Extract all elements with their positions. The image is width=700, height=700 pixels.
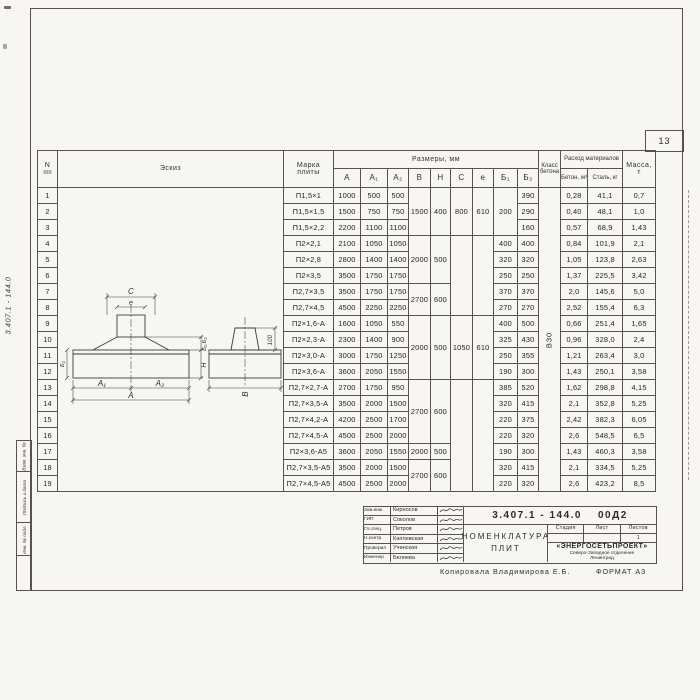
sketch-dim-c: С: [128, 287, 134, 296]
mass: 2,63: [623, 252, 656, 268]
plate-mark: П2×2,3-А: [284, 332, 334, 348]
concrete-volume: 2,42: [561, 412, 588, 428]
dim-a: 3600: [334, 444, 361, 460]
dim-a2: 1550: [388, 444, 409, 460]
dim-e: 610: [473, 188, 494, 236]
col-header-mass: Масса,т: [623, 151, 656, 188]
steel-weight: 145,6: [588, 284, 623, 300]
mass: 1,0: [623, 204, 656, 220]
col-header-size-3: В: [409, 169, 431, 188]
concrete-volume: 2,0: [561, 284, 588, 300]
scan-artifact-line: [688, 190, 689, 480]
dim-a: 4500: [334, 428, 361, 444]
col-header-size-0: А: [334, 169, 361, 188]
concrete-volume: 1,05: [561, 252, 588, 268]
row-number: 12: [38, 364, 58, 380]
row-number: 19: [38, 476, 58, 492]
dim-b2: 320: [518, 252, 539, 268]
staff-row: ПроверилУчинская: [363, 544, 463, 554]
staff-name: Соколов: [391, 516, 438, 525]
staff-role: Зав.инж.: [363, 506, 391, 515]
plate-mark: П2×2,1: [284, 236, 334, 252]
dim-a: 2200: [334, 220, 361, 236]
plate-mark: П2,7×4,2-А: [284, 412, 334, 428]
row-number: 16: [38, 428, 58, 444]
sketch-dim-a: А: [127, 391, 134, 400]
col-header-size-2: А₂: [388, 169, 409, 188]
page-number: 13: [658, 136, 670, 146]
signature: [439, 554, 463, 562]
staff-signature: [438, 544, 463, 553]
staff-signature: [438, 516, 463, 525]
staff-role: ГИП: [363, 516, 391, 525]
dim-a1: 1050: [361, 236, 388, 252]
scan-smudge: [3, 44, 7, 49]
plate-mark: П2,7×4,5: [284, 300, 334, 316]
dim-a1: 1750: [361, 348, 388, 364]
dim-b2: 300: [518, 364, 539, 380]
concrete-volume: 2,6: [561, 428, 588, 444]
margin-stamp-boxes: Взам. инв. №Подпись и датаИнв. № подл.: [16, 440, 32, 591]
steel-weight: 334,5: [588, 460, 623, 476]
row-number: 15: [38, 412, 58, 428]
dim-a2: 1400: [388, 252, 409, 268]
dim-a2: 2000: [388, 428, 409, 444]
steel-weight: 123,8: [588, 252, 623, 268]
dim-a2: 550: [388, 316, 409, 332]
mass: 5,25: [623, 460, 656, 476]
row-number: 9: [38, 316, 58, 332]
dim-b1: 320: [494, 460, 518, 476]
plate-mark: П2×1,6-А: [284, 316, 334, 332]
dim-a: 4200: [334, 412, 361, 428]
dim-a1: 1750: [361, 268, 388, 284]
mass: 4,15: [623, 380, 656, 396]
stage-col-stadiya: Стадия: [548, 524, 584, 533]
concrete-volume: 1,21: [561, 348, 588, 364]
col-header-size-8: Б₂: [518, 169, 539, 188]
staff-role: Гл.спец.: [363, 525, 391, 534]
col-header-size-4: Н: [431, 169, 451, 188]
dim-a: 3500: [334, 284, 361, 300]
mass: 6,5: [623, 428, 656, 444]
row-number: 18: [38, 460, 58, 476]
staff-row: ИнженерБеляева: [363, 554, 463, 563]
row-number: 3: [38, 220, 58, 236]
row-number: 14: [38, 396, 58, 412]
dim-h: 600: [431, 284, 451, 316]
mass: 0,7: [623, 188, 656, 204]
dim-b1: 220: [494, 428, 518, 444]
steel-weight: 251,4: [588, 316, 623, 332]
dim-a: 1600: [334, 316, 361, 332]
dim-a2: 1050: [388, 236, 409, 252]
sketch-dim-left: Б₂: [60, 360, 66, 367]
staff-name: Беляева: [391, 554, 438, 563]
dim-c: [451, 380, 473, 492]
steel-weight: 382,3: [588, 412, 623, 428]
dim-b1: 370: [494, 284, 518, 300]
steel-weight: 225,5: [588, 268, 623, 284]
dim-h: 400: [431, 188, 451, 236]
dim-b1: 190: [494, 364, 518, 380]
title-block-stage: Стадия Лист Листов 1 «ЭНЕРГОСЕТЬПРОЕКТ» …: [547, 524, 656, 562]
dim-h: 600: [431, 380, 451, 444]
dim-b2: 320: [518, 476, 539, 492]
dim-a2: 2000: [388, 476, 409, 492]
col-header-sketch: Эскиз: [58, 151, 284, 188]
row-number: 11: [38, 348, 58, 364]
dim-a1: 2500: [361, 428, 388, 444]
sketch-cell: С е А₁ А₂ А Б₁,Б₂ Н Б₂ В 100: [58, 188, 284, 492]
dim-a1: 2050: [361, 364, 388, 380]
staff-role: Н.контр.: [363, 535, 391, 544]
dim-a2: 2250: [388, 300, 409, 316]
plate-mark: П2,7×3,5-А: [284, 396, 334, 412]
mass: 8,5: [623, 476, 656, 492]
list-value: [584, 534, 620, 542]
staff-signature: [438, 506, 463, 515]
steel-weight: 101,9: [588, 236, 623, 252]
signature: [439, 525, 463, 533]
dim-b2: 400: [518, 236, 539, 252]
staff-role: Инженер: [363, 554, 391, 563]
signature: [439, 506, 463, 514]
mass: 1,43: [623, 220, 656, 236]
row-number: 10: [38, 332, 58, 348]
col-header-size-5: С: [451, 169, 473, 188]
dim-b2: 390: [518, 188, 539, 204]
signature: [439, 516, 463, 524]
dim-a1: 750: [361, 204, 388, 220]
margin-stamp-box: Инв. № подл.: [17, 523, 31, 556]
title-block-staff: Зав.инж.КирносовГИПСоколовГл.спец.Петров…: [363, 506, 463, 562]
stage-col-list: Лист: [584, 524, 620, 533]
mass: 1,65: [623, 316, 656, 332]
concrete-volume: 0,57: [561, 220, 588, 236]
plate-mark: П2×3,6-А: [284, 364, 334, 380]
plate-mark: П2×3,5: [284, 268, 334, 284]
plate-mark: П2,7×2,7-А: [284, 380, 334, 396]
concrete-volume: 0,84: [561, 236, 588, 252]
dim-b1: 400: [494, 236, 518, 252]
plate-mark: П2×3,6-А5: [284, 444, 334, 460]
mass: 6,3: [623, 300, 656, 316]
steel-weight: 460,3: [588, 444, 623, 460]
dim-a2: 1750: [388, 268, 409, 284]
concrete-volume: 2,1: [561, 396, 588, 412]
scan-smudge: [4, 6, 11, 9]
concrete-class: В30: [539, 188, 561, 492]
dim-c: [451, 236, 473, 316]
sketch-dim-h: Н: [201, 362, 208, 368]
dim-b: 2000: [409, 236, 431, 284]
steel-weight: 155,4: [588, 300, 623, 316]
steel-weight: 328,0: [588, 332, 623, 348]
dim-a: 4500: [334, 300, 361, 316]
col-header-sizes: Размеры, мм: [334, 151, 539, 169]
dim-a1: 2050: [361, 444, 388, 460]
steel-weight: 298,8: [588, 380, 623, 396]
staff-name: Учинская: [391, 544, 438, 553]
mass: 3,58: [623, 364, 656, 380]
dim-b1: 220: [494, 476, 518, 492]
staff-role: Проверил: [363, 544, 391, 553]
signature: [439, 544, 463, 552]
mass: 5,25: [623, 396, 656, 412]
col-header-size-6: е: [473, 169, 494, 188]
drawing-sheet: 13 3.407.1 - 144.0 Взам. инв. №Подпись и…: [0, 0, 700, 700]
col-header-consumption-0: Бетон, м³: [561, 169, 588, 188]
steel-weight: 352,8: [588, 396, 623, 412]
row-number: 7: [38, 284, 58, 300]
dim-a2: 950: [388, 380, 409, 396]
col-header-size-1: А₁: [361, 169, 388, 188]
concrete-volume: 0,66: [561, 316, 588, 332]
dim-a1: 1400: [361, 332, 388, 348]
steel-weight: 41,1: [588, 188, 623, 204]
dim-a1: 1050: [361, 316, 388, 332]
dim-b: 2700: [409, 460, 431, 492]
dim-e: 610: [473, 316, 494, 380]
dim-a1: 1750: [361, 380, 388, 396]
row-number: 8: [38, 300, 58, 316]
concrete-volume: 0,40: [561, 204, 588, 220]
dim-b2: 160: [518, 220, 539, 236]
concrete-volume: 1,62: [561, 380, 588, 396]
dim-c: 800: [451, 188, 473, 236]
dim-a: 1500: [334, 204, 361, 220]
dim-a: 2800: [334, 252, 361, 268]
row-number: 17: [38, 444, 58, 460]
dim-a2: 1100: [388, 220, 409, 236]
organization: «ЭНЕРГОСЕТЬПРОЕКТ» Северо-Западное отдел…: [548, 543, 656, 562]
dim-a1: 2000: [361, 460, 388, 476]
mass: 3,42: [623, 268, 656, 284]
dim-b2: 320: [518, 428, 539, 444]
col-header-mark: Маркаплиты: [284, 151, 334, 188]
steel-weight: 48,1: [588, 204, 623, 220]
dim-b1: 270: [494, 300, 518, 316]
dim-b1: 320: [494, 396, 518, 412]
dim-b1: 250: [494, 268, 518, 284]
dim-a1: 2250: [361, 300, 388, 316]
steel-weight: 548,5: [588, 428, 623, 444]
stage-value: [548, 534, 584, 542]
concrete-volume: 2,52: [561, 300, 588, 316]
sketch-dim-b: В: [241, 391, 250, 397]
dim-b2: 520: [518, 380, 539, 396]
dim-a: 2700: [334, 380, 361, 396]
dim-a2: 1550: [388, 364, 409, 380]
dim-a2: 1700: [388, 412, 409, 428]
concrete-volume: 0,28: [561, 188, 588, 204]
dim-a1: 1400: [361, 252, 388, 268]
steel-weight: 263,4: [588, 348, 623, 364]
col-header-size-7: Б₁: [494, 169, 518, 188]
dim-b2: 370: [518, 284, 539, 300]
dim-a2: 1750: [388, 284, 409, 300]
page-number-box: 13: [645, 130, 684, 152]
row-number: 13: [38, 380, 58, 396]
sketch-dim-a1: А₁: [96, 379, 106, 388]
listov-value: 1: [621, 534, 656, 542]
plate-mark: П2×2,8: [284, 252, 334, 268]
dim-e: [473, 236, 494, 316]
dim-b: 2700: [409, 284, 431, 316]
col-header-row-number: Nп/п: [38, 151, 58, 188]
concrete-volume: 2,6: [561, 476, 588, 492]
dim-b2: 290: [518, 204, 539, 220]
dim-a: 3500: [334, 396, 361, 412]
dim-a2: 900: [388, 332, 409, 348]
mass: 2,1: [623, 236, 656, 252]
dim-b1: 220: [494, 412, 518, 428]
margin-doc-number: 3.407.1 - 144.0: [0, 255, 16, 355]
dim-b: 2700: [409, 380, 431, 444]
steel-weight: 68,9: [588, 220, 623, 236]
dim-a1: 2500: [361, 476, 388, 492]
dim-a2: 1250: [388, 348, 409, 364]
concrete-volume: 1,43: [561, 364, 588, 380]
dim-a1: 500: [361, 188, 388, 204]
row-number: 2: [38, 204, 58, 220]
margin-stamp-box: [17, 556, 31, 591]
dim-a: 4500: [334, 476, 361, 492]
steel-weight: 250,1: [588, 364, 623, 380]
dim-h: 600: [431, 460, 451, 492]
row-number: 1: [38, 188, 58, 204]
dim-b2: 415: [518, 396, 539, 412]
dim-a1: 1750: [361, 284, 388, 300]
dim-b2: 430: [518, 332, 539, 348]
staff-row: ГИПСоколов: [363, 516, 463, 526]
concrete-volume: 1,37: [561, 268, 588, 284]
plate-mark: П2,7×3,5: [284, 284, 334, 300]
dim-a: 3500: [334, 460, 361, 476]
plate-mark: П2,7×4,5-А: [284, 428, 334, 444]
col-header-consumption: Расход материалов: [561, 151, 623, 169]
dim-b1: 385: [494, 380, 518, 396]
dim-b2: 250: [518, 268, 539, 284]
dim-b2: 415: [518, 460, 539, 476]
dim-a: 3000: [334, 348, 361, 364]
concrete-volume: 1,43: [561, 444, 588, 460]
plate-mark: П2×3,0-А: [284, 348, 334, 364]
dim-b: 1500: [409, 188, 431, 236]
col-header-consumption-1: Сталь, кг: [588, 169, 623, 188]
concrete-volume: 2,1: [561, 460, 588, 476]
dim-b1: 200: [494, 188, 518, 236]
dim-a2: 750: [388, 204, 409, 220]
stage-col-listov: Листов: [621, 524, 656, 533]
dim-h: 500: [431, 316, 451, 380]
plate-mark: П2,7×3,5-А5: [284, 460, 334, 476]
table-row: 1: [38, 188, 656, 204]
title-block-title: НОМЕНКЛАТУРА ПЛИТ: [463, 524, 548, 562]
dim-h: 500: [431, 444, 451, 460]
signature: [439, 535, 463, 543]
dim-b: 2000: [409, 444, 431, 460]
mass: 3,0: [623, 348, 656, 364]
dim-a: 2300: [334, 332, 361, 348]
dim-a: 1000: [334, 188, 361, 204]
staff-row: Гл.спец.Петров: [363, 525, 463, 535]
sketch-dim-e: е: [128, 300, 132, 307]
plate-mark: П2,7×4,5-А5: [284, 476, 334, 492]
plate-mark: П1,5×2,2: [284, 220, 334, 236]
dim-c: 1050: [451, 316, 473, 380]
dim-a: 3500: [334, 268, 361, 284]
nomenclature-table: Nп/п Эскиз Маркаплиты Размеры, мм Классб…: [37, 150, 656, 492]
dim-b1: 250: [494, 348, 518, 364]
dim-b: 2000: [409, 316, 431, 380]
mass: 5,0: [623, 284, 656, 300]
plate-mark: П1,5×1,5: [284, 204, 334, 220]
sketch-dim-a2: А₂: [154, 379, 164, 388]
margin-stamp-box: Взам. инв. №: [17, 441, 31, 472]
dim-b1: 320: [494, 252, 518, 268]
col-header-concrete-class: Классбетона: [539, 151, 561, 188]
dim-a2: 1500: [388, 396, 409, 412]
dim-a2: 500: [388, 188, 409, 204]
mass: 6,05: [623, 412, 656, 428]
staff-row: Н.контр.Каплевская: [363, 535, 463, 545]
staff-name: Кирносов: [391, 506, 438, 515]
concrete-volume: 0,96: [561, 332, 588, 348]
mass: 2,4: [623, 332, 656, 348]
staff-signature: [438, 525, 463, 534]
dim-b2: 300: [518, 444, 539, 460]
staff-name: Петров: [391, 525, 438, 534]
steel-weight: 423,2: [588, 476, 623, 492]
dim-b1: 190: [494, 444, 518, 460]
staff-row: Зав.инж.Кирносов: [363, 506, 463, 516]
dim-a: 3600: [334, 364, 361, 380]
dim-a1: 2500: [361, 412, 388, 428]
dim-e: [473, 380, 494, 492]
title-block-doc-number: 3.407.1 - 144.0 00Д2: [463, 506, 656, 525]
dim-a1: 1100: [361, 220, 388, 236]
staff-signature: [438, 535, 463, 544]
margin-stamp-box: Подпись и дата: [17, 472, 31, 523]
sketch-dim-b1b2: Б₁,Б₂: [202, 337, 208, 351]
sketch-dim-100: 100: [268, 334, 274, 345]
staff-signature: [438, 554, 463, 563]
dim-b2: 500: [518, 316, 539, 332]
plate-mark: П1,5×1: [284, 188, 334, 204]
dim-b1: 400: [494, 316, 518, 332]
plate-cross-section-sketch: С е А₁ А₂ А Б₁,Б₂ Н Б₂ В 100: [59, 197, 283, 480]
dim-b2: 270: [518, 300, 539, 316]
dim-a2: 1500: [388, 460, 409, 476]
dim-h: 500: [431, 236, 451, 284]
dim-b2: 355: [518, 348, 539, 364]
dim-b1: 325: [494, 332, 518, 348]
staff-name: Каплевская: [391, 535, 438, 544]
row-number: 6: [38, 268, 58, 284]
dim-a1: 2000: [361, 396, 388, 412]
mass: 3,58: [623, 444, 656, 460]
row-number: 5: [38, 252, 58, 268]
format-note: ФОРМАТ А3: [596, 567, 646, 576]
dim-b2: 375: [518, 412, 539, 428]
copied-by-note: Копировала Владимирова Е.Б.: [440, 567, 570, 576]
row-number: 4: [38, 236, 58, 252]
dim-a: 2100: [334, 236, 361, 252]
